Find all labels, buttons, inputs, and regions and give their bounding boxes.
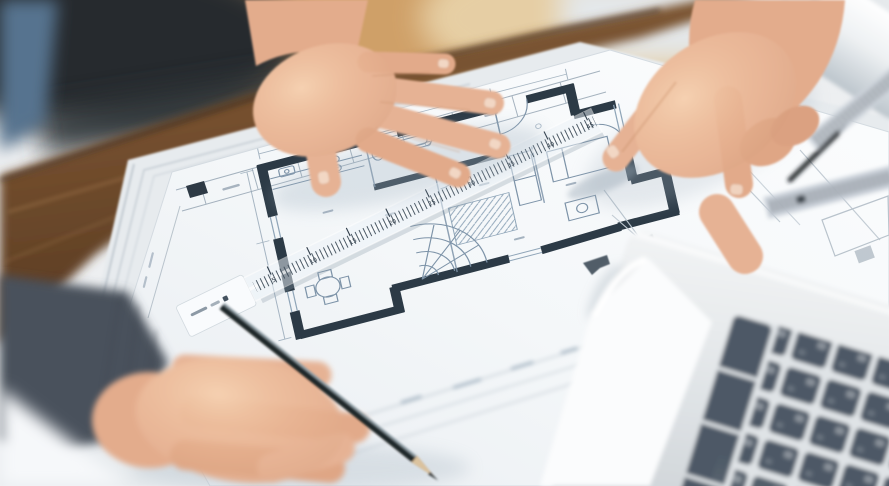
thumb <box>717 212 745 256</box>
middle-fingernail <box>729 183 743 195</box>
pinky-nail <box>438 59 450 69</box>
photo-architects-blueprint: 7 510 1520 2530 3540 45 <box>0 0 889 486</box>
scene: 7 510 1520 2530 3540 45 <box>0 0 889 486</box>
thumb-nail <box>317 170 330 185</box>
